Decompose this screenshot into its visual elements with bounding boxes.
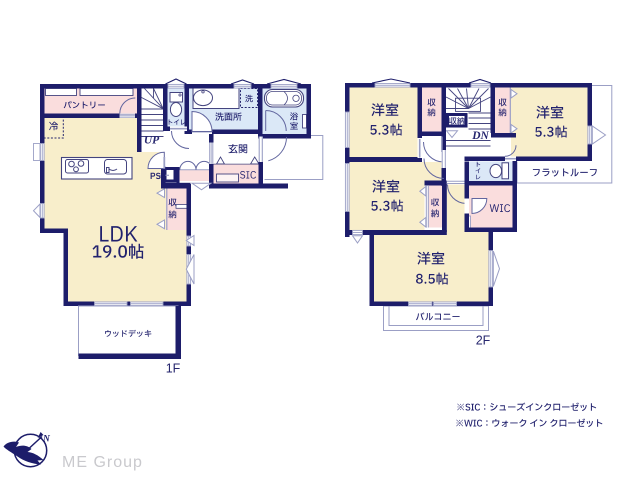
svg-text:2F: 2F <box>476 334 491 348</box>
svg-text:UP: UP <box>144 135 160 147</box>
svg-text:N: N <box>42 435 51 445</box>
svg-text:ME Group: ME Group <box>62 454 143 471</box>
svg-text:1F: 1F <box>166 362 181 376</box>
svg-text:DN: DN <box>471 130 489 142</box>
